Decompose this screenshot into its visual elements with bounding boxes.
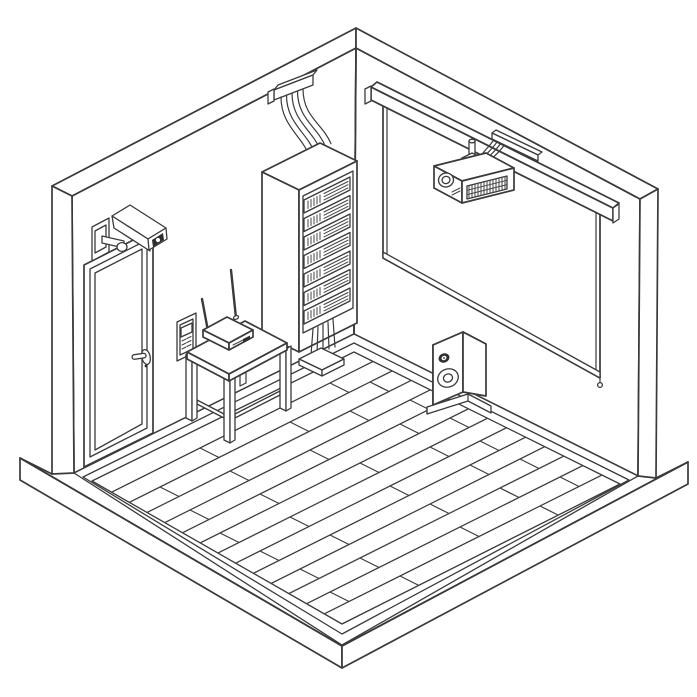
door	[84, 230, 153, 467]
table-leg	[224, 377, 235, 443]
illustration-canvas	[0, 0, 697, 697]
table-leg	[186, 355, 197, 421]
table-leg	[280, 346, 291, 411]
server-rack	[262, 143, 357, 355]
speaker	[427, 332, 491, 414]
scene-illustration	[0, 0, 697, 697]
